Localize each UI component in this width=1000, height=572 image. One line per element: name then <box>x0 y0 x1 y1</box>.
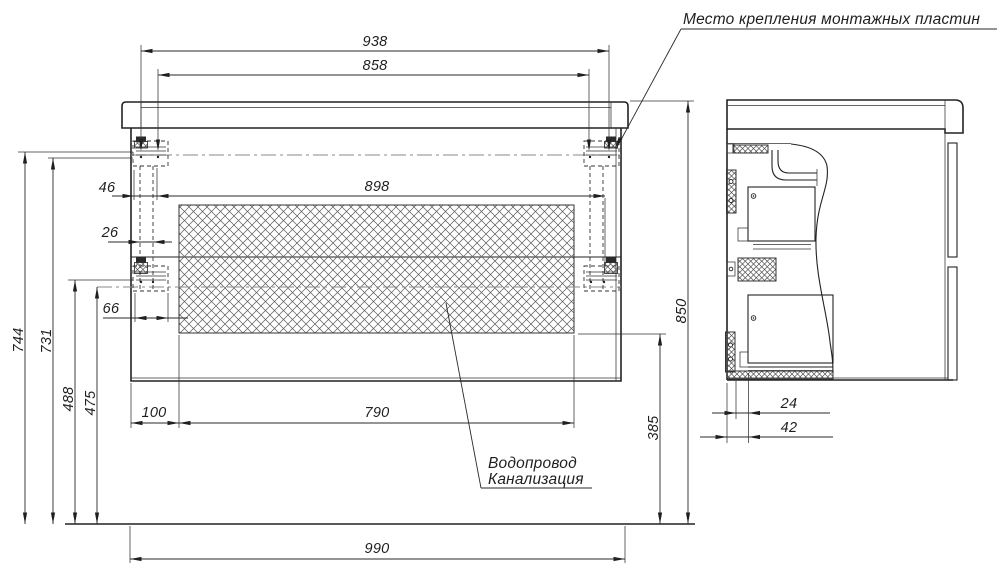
vanity-installation-drawing: 938 858 898 46 26 66 100 790 990 744 731… <box>0 0 1000 572</box>
side-bottom-hatch-strip <box>727 371 833 379</box>
mounting-plate-upper-left <box>133 137 168 167</box>
plumbing-note-line1: Водопровод <box>488 455 577 472</box>
dim-475: 475 <box>83 390 99 416</box>
mounting-plate-lower-right <box>584 257 619 291</box>
dim-66: 66 <box>103 301 120 317</box>
upper-drawer-box <box>738 187 815 249</box>
side-view <box>726 100 964 380</box>
technical-drawing-sheet: 938 858 898 46 26 66 100 790 990 744 731… <box>0 0 1000 572</box>
break-line-wave <box>791 144 833 373</box>
mounting-plates-note: Место крепления монтажных пластин <box>683 11 980 28</box>
plumbing-note-line2: Канализация <box>488 471 584 488</box>
dim-990: 990 <box>364 541 389 557</box>
dim-24: 24 <box>780 396 798 412</box>
lower-drawer-front-panel <box>948 267 957 380</box>
dim-46: 46 <box>99 180 116 196</box>
dim-385: 385 <box>646 415 662 441</box>
back-opening-hatch <box>179 205 574 333</box>
dim-731: 731 <box>39 328 55 353</box>
dim-938: 938 <box>362 34 387 50</box>
mounting-plate-lower-left <box>133 257 168 291</box>
front-view <box>97 102 628 381</box>
dim-744: 744 <box>11 327 27 352</box>
dim-488: 488 <box>61 386 77 411</box>
lower-drawer-box <box>740 295 833 371</box>
dim-42: 42 <box>781 420 798 436</box>
drain-pipe <box>772 150 817 186</box>
front-countertop <box>122 102 628 128</box>
dim-790: 790 <box>364 405 389 421</box>
dim-898: 898 <box>364 179 389 195</box>
mounting-note-leader <box>616 29 681 149</box>
dim-100: 100 <box>141 405 166 421</box>
side-countertop <box>727 100 963 133</box>
dim-858: 858 <box>362 58 387 74</box>
dim-26: 26 <box>101 225 119 241</box>
upper-drawer-front-panel <box>948 143 957 257</box>
dim-850: 850 <box>674 298 690 323</box>
